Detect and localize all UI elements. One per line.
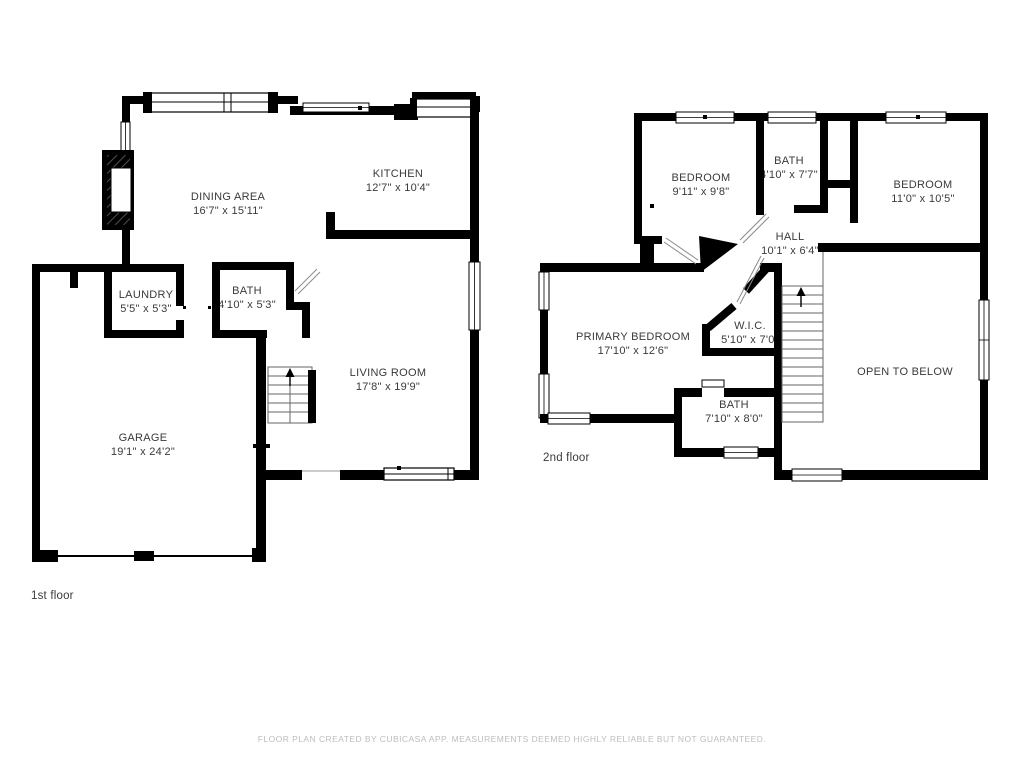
room-name: HALL [730,231,850,245]
room-label-kitchen: KITCHEN 12'7" x 10'4" [298,168,498,195]
room-dims: 19'1" x 24'2" [43,446,243,460]
room-dims: 10'1" x 6'4" [730,245,850,259]
room-name: LIVING ROOM [288,367,488,381]
room-name: BATH [729,155,849,169]
room-name: BATH [187,285,307,299]
room-label-bath-1f: BATH 4'10" x 5'3" [187,285,307,312]
room-label-wic: W.I.C. 5'10" x 7'0" [690,320,810,347]
room-dims: 7'10" x 8'0" [674,413,794,427]
room-dims: 5'10" x 7'0" [690,334,810,348]
room-label-dining-area: DINING AREA 16'7" x 15'11" [128,191,328,218]
room-label-living-room: LIVING ROOM 17'8" x 19'9" [288,367,488,394]
room-name: KITCHEN [298,168,498,182]
room-label-garage: GARAGE 19'1" x 24'2" [43,432,243,459]
room-name: OPEN TO BELOW [805,366,1005,380]
labels-layer: DINING AREA 16'7" x 15'11" KITCHEN 12'7"… [0,0,1024,768]
floor-label-1st: 1st floor [31,590,74,602]
room-name: W.I.C. [690,320,810,334]
room-label-bath-top: BATH 4'10" x 7'7" [729,155,849,182]
room-name: BATH [674,399,794,413]
disclaimer-text: FLOOR PLAN CREATED BY CUBICASA APP. MEAS… [0,734,1024,744]
room-dims: 12'7" x 10'4" [298,182,498,196]
room-name: BEDROOM [823,179,1023,193]
room-label-open-to-below: OPEN TO BELOW [805,366,1005,380]
room-dims: 4'10" x 5'3" [187,299,307,313]
room-label-bedroom-right: BEDROOM 11'0" x 10'5" [823,179,1023,206]
room-label-bath-bottom: BATH 7'10" x 8'0" [674,399,794,426]
room-dims: 11'0" x 10'5" [823,193,1023,207]
floor-plan-page: DINING AREA 16'7" x 15'11" KITCHEN 12'7"… [0,0,1024,768]
room-name: GARAGE [43,432,243,446]
room-dims: 17'8" x 19'9" [288,381,488,395]
room-dims: 16'7" x 15'11" [128,205,328,219]
floor-label-2nd: 2nd floor [543,452,590,464]
room-label-hall: HALL 10'1" x 6'4" [730,231,850,258]
room-dims: 9'11" x 9'8" [601,186,801,200]
